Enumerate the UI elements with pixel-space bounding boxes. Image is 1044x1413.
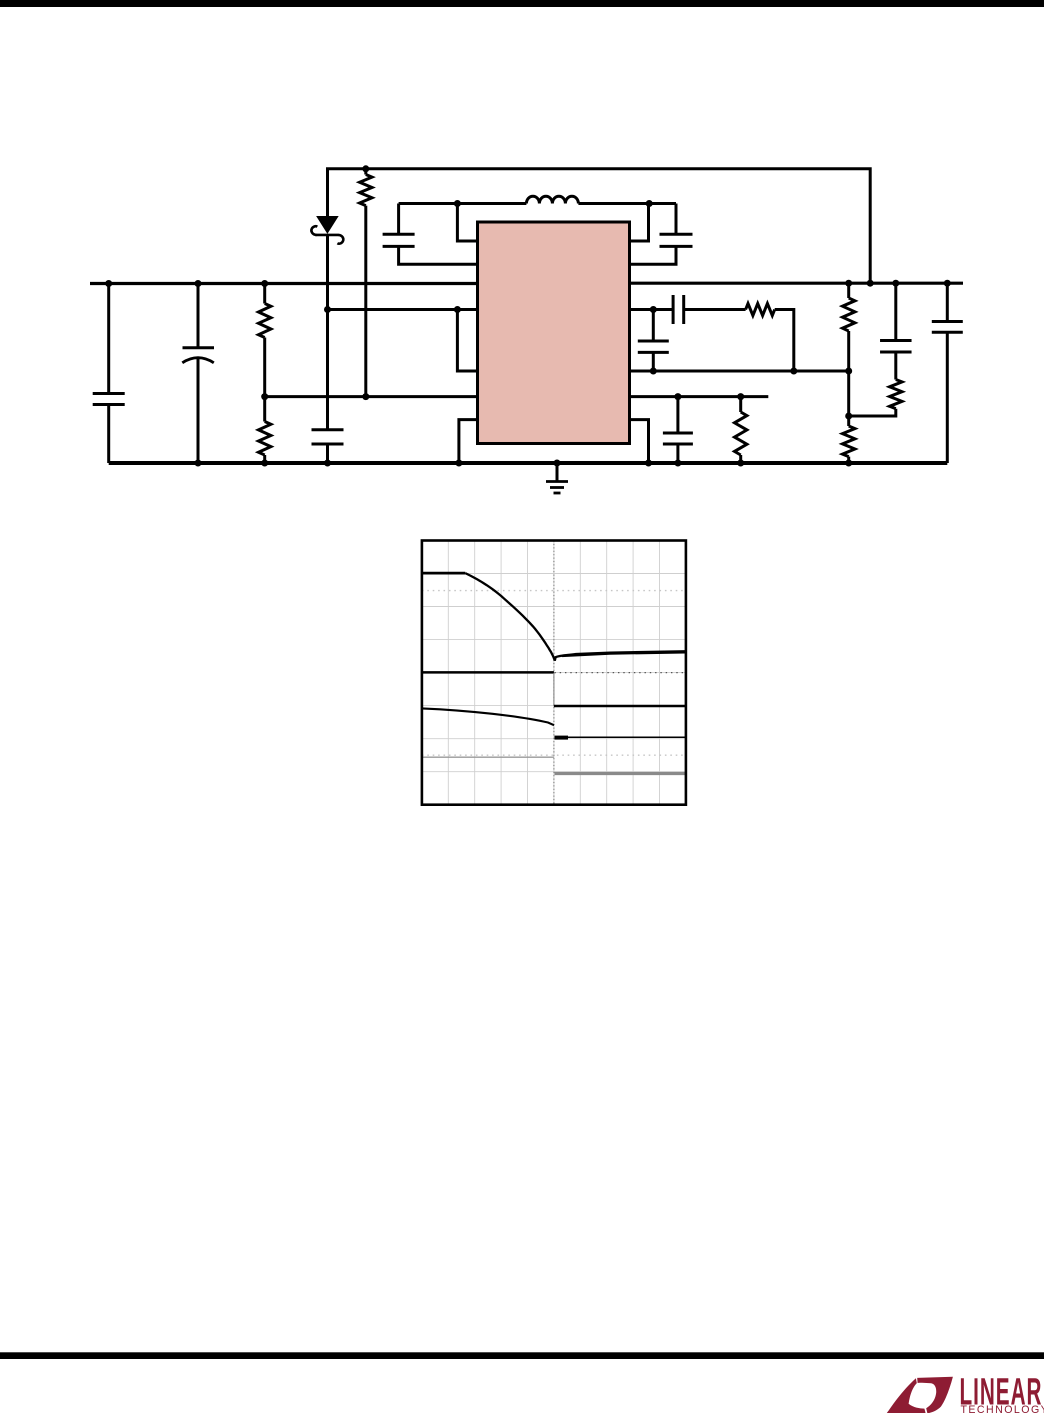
svg-text:TECHNOLOGY: TECHNOLOGY: [961, 1404, 1044, 1413]
